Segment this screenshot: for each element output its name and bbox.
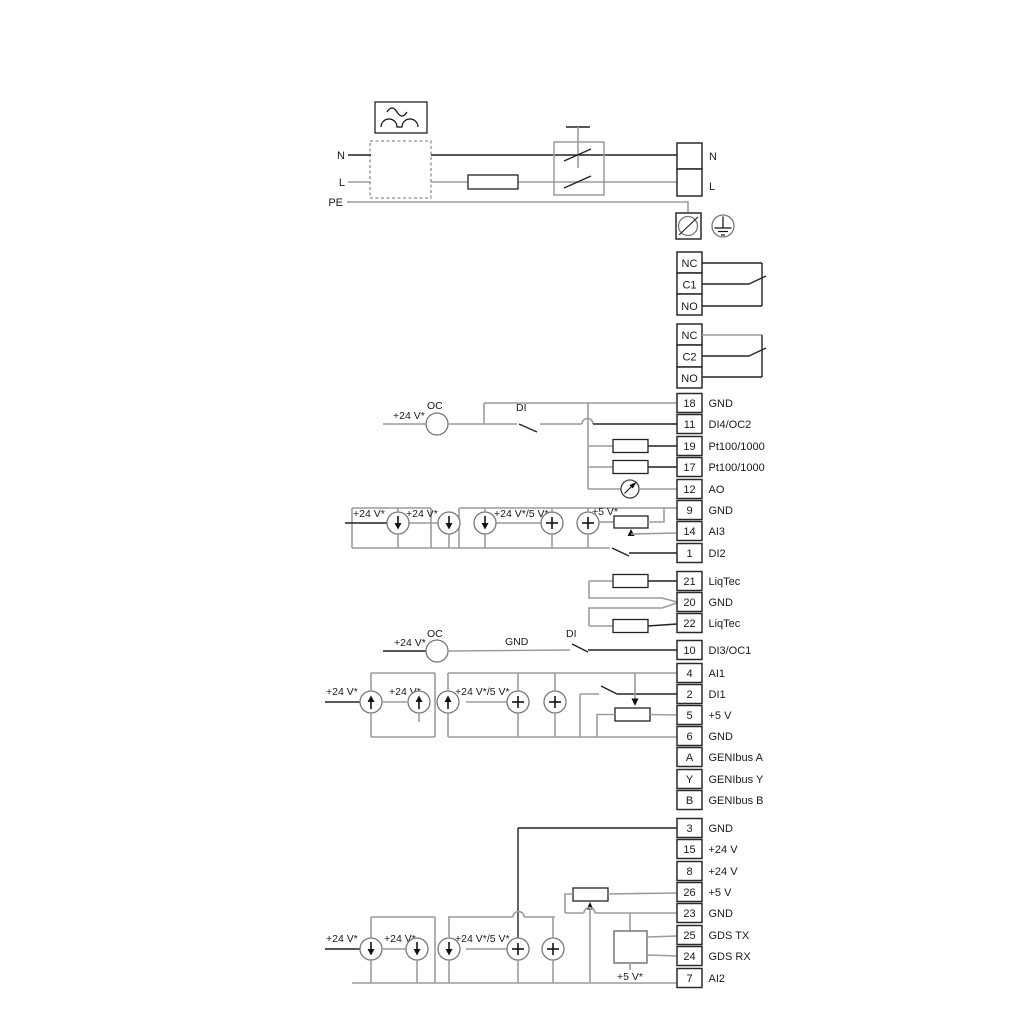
shape: [614, 931, 647, 963]
plus24v-label: +24 V*: [393, 410, 425, 422]
pt100-ao-circuit: [588, 440, 677, 499]
terminal-name: AI3: [709, 526, 726, 538]
terminal-number: 12: [683, 484, 695, 496]
terminal-number: A: [686, 752, 694, 764]
ai3-option-group: +24 V* +24 V* +24 V*/5 V* +5 V*: [345, 506, 677, 556]
terminal-number: 24: [683, 951, 695, 963]
terminal-number: 11: [684, 419, 695, 431]
terminal-row: 22LiqTec: [677, 614, 741, 633]
wire: [650, 715, 677, 716]
terminal-row: AGENIbus A: [677, 748, 764, 767]
terminal-name: LiqTec: [709, 618, 741, 630]
open-collector-icon: [426, 413, 448, 435]
wire: [597, 715, 615, 738]
terminal-row: 15+24 V: [677, 840, 738, 859]
plus24v-5v-label: +24 V*/5 V*: [455, 686, 510, 698]
relay2-nc: NC: [682, 330, 698, 342]
wire: [647, 955, 677, 956]
ai1-option-group: +24 V* +24 V* +24 V*/5 V*: [325, 673, 677, 737]
terminal-row: 19Pt100/1000: [677, 437, 765, 456]
terminal-row: 17Pt100/1000: [677, 458, 765, 477]
terminal-name: +24 V: [709, 844, 739, 856]
shape: [615, 708, 650, 721]
shape: [621, 480, 639, 498]
terminal-name: DI4/OC2: [709, 419, 752, 431]
current-sink-icon: [438, 917, 460, 983]
wiring-diagram-page: N L PE N L: [0, 0, 1024, 1024]
wire: [565, 894, 573, 913]
terminal-row: 14AI3: [677, 522, 725, 541]
resistor: [613, 575, 648, 588]
terminal-name: GND: [709, 908, 734, 920]
plus24v-label: +24 V*: [326, 933, 358, 945]
relay1-nc: NC: [682, 258, 698, 270]
l-right-label: L: [709, 181, 715, 193]
terminal-name: AI2: [709, 973, 726, 985]
terminal-number: 6: [686, 731, 692, 743]
analog-output-icon: [621, 480, 639, 498]
di2-switch-blade: [612, 548, 629, 556]
di1-switch-blade: [601, 686, 617, 694]
terminal-name: LiqTec: [709, 576, 741, 588]
terminal-number: 7: [686, 973, 692, 985]
power-section: N L PE N L: [328, 102, 734, 239]
terminal-row: 12AO: [677, 480, 725, 499]
terminal-number: 3: [686, 823, 692, 835]
n-right-label: N: [709, 151, 717, 163]
shape: [614, 516, 648, 528]
relay2-no: NO: [681, 373, 698, 385]
plus24v-label: +24 V*: [394, 637, 426, 649]
wiper-arrow: [632, 699, 639, 707]
current-source-icon: [437, 673, 459, 737]
current-source-icon: [360, 673, 382, 737]
terminal-number: 1: [686, 548, 692, 560]
terminal-number: 23: [683, 908, 695, 920]
oc-label: OC: [427, 400, 443, 412]
terminal-name: +5 V: [709, 887, 733, 899]
terminal-name: GDS RX: [709, 951, 752, 963]
terminal-number: Y: [686, 774, 694, 786]
terminal-name: AI1: [709, 668, 726, 680]
current-sink-icon: [438, 512, 460, 548]
relay2-contact-blade: [749, 348, 766, 356]
terminal-name: GND: [709, 823, 734, 835]
wire: [631, 533, 677, 534]
terminal-number: 26: [683, 887, 695, 899]
current-sink-icon: [360, 917, 382, 983]
terminal-name: +5 V: [709, 710, 733, 722]
relay2-c: C2: [682, 352, 696, 364]
oc-label: OC: [427, 628, 443, 640]
terminal-number: 8: [686, 866, 692, 878]
terminal-name: GENIbus Y: [709, 774, 764, 786]
terminal-number: 20: [683, 597, 695, 609]
terminal-name: GND: [709, 398, 734, 410]
terminal-strip: 18GND11DI4/OC219Pt100/100017Pt100/100012…: [677, 394, 765, 988]
terminal-name: GENIbus B: [709, 795, 764, 807]
shape: [677, 169, 702, 196]
plus5v-label: +5 V*: [617, 971, 643, 983]
terminal-row: 10DI3/OC1: [677, 641, 751, 660]
resistor: [613, 440, 648, 453]
open-collector-icon: [426, 640, 448, 662]
wire: [647, 936, 677, 937]
relay1-c: C1: [682, 280, 696, 292]
terminal-name: GND: [709, 597, 734, 609]
terminal-row: 1DI2: [677, 544, 726, 563]
terminal-number: 19: [683, 441, 695, 453]
filter-box: [370, 141, 431, 198]
terminal-name: DI3/OC1: [709, 645, 752, 657]
terminal-name: GDS TX: [709, 930, 750, 942]
voltage-source-icon: [507, 673, 529, 737]
terminal-name: GND: [709, 731, 734, 743]
potentiometer: [597, 708, 677, 737]
resistor: [613, 620, 648, 633]
terminal-number: 4: [686, 668, 692, 680]
relay1-contact-blade: [749, 276, 766, 284]
shape: [554, 142, 604, 195]
shape: [573, 888, 608, 901]
terminal-row: 21LiqTec: [677, 572, 741, 591]
terminal-number: 15: [683, 844, 695, 856]
plus24v-5v-label: +24 V*/5 V*: [494, 508, 549, 520]
resistor: [613, 461, 648, 474]
terminal-row: 20GND: [677, 593, 733, 612]
relay-1: NC C1 NO: [677, 252, 766, 315]
terminal-row: 26+5 V: [677, 883, 732, 902]
terminal-number: 10: [683, 645, 695, 657]
di3-switch-blade: [572, 644, 588, 652]
terminal-number: 5: [686, 710, 692, 722]
terminal-row: 25GDS TX: [677, 926, 750, 945]
shape: [677, 143, 702, 169]
terminal-row: 5+5 V: [677, 706, 732, 725]
terminal-number: 22: [683, 618, 695, 630]
earth-icon: [712, 215, 734, 237]
terminal-name: Pt100/1000: [709, 462, 765, 474]
relay-2: NC C2 NO: [677, 324, 766, 388]
liqtec-circuit: [589, 575, 677, 633]
pe-wire: [347, 202, 688, 214]
terminal-row: 7AI2: [677, 969, 725, 988]
terminal-name: DI2: [709, 548, 726, 560]
plus24v-5v-label: +24 V*/5 V*: [455, 933, 510, 945]
terminal-name: DI1: [709, 689, 726, 701]
wire: [448, 650, 570, 651]
gnd-label: GND: [505, 636, 529, 648]
current-sink-icon: [406, 938, 428, 983]
gds-module: +5 V*: [614, 913, 677, 983]
terminal-row: 9GND: [677, 501, 733, 520]
terminal-number: 25: [683, 930, 695, 942]
terminal-name: GENIbus A: [709, 752, 764, 764]
terminal-row: 3GND: [677, 819, 733, 838]
wire: [648, 624, 677, 626]
voltage-source-icon: [507, 938, 529, 983]
l-left-label: L: [339, 177, 345, 189]
potentiometer: [565, 888, 677, 982]
terminal-name: GND: [709, 505, 734, 517]
shape: [628, 529, 635, 536]
n-left-label: N: [337, 150, 345, 162]
ai2-option-group: +24 V* +24 V* +24 V*/5 V*: [325, 828, 677, 983]
terminal-name: +24 V: [709, 866, 739, 878]
terminal-row: 2DI1: [677, 685, 726, 704]
terminal-row: 23GND: [677, 904, 733, 923]
terminal-row: BGENIbus B: [677, 791, 764, 810]
pe-screw-terminal: [676, 213, 701, 239]
terminal-row: 11DI4/OC2: [677, 415, 751, 434]
terminal-number: 14: [683, 526, 695, 538]
wire: [608, 893, 677, 894]
terminal-name: AO: [709, 484, 725, 496]
terminal-number: 21: [683, 576, 695, 588]
voltage-source-icon: [542, 917, 564, 983]
plus24v-label: +24 V*: [406, 508, 438, 520]
mains-terminal-block: N L: [677, 143, 717, 196]
terminal-row: 24GDS RX: [677, 947, 751, 966]
plus24v-label: +24 V*: [353, 508, 385, 520]
terminal-row: 4AI1: [677, 664, 725, 683]
terminal-row: 8+24 V: [677, 862, 738, 881]
fuse: [468, 175, 518, 189]
voltage-source-icon: [544, 673, 566, 737]
wire: [648, 508, 664, 522]
di-label: DI: [566, 628, 577, 640]
rectifier-box: [375, 102, 427, 133]
di4-switch-blade: [519, 424, 537, 432]
terminal-row: 6GND: [677, 727, 733, 746]
mains-switch: [554, 127, 604, 195]
current-source-icon: [408, 691, 430, 722]
terminal-number: 9: [686, 505, 692, 517]
terminal-number: B: [686, 795, 693, 807]
terminal-number: 18: [683, 398, 695, 410]
pe-label: PE: [328, 197, 343, 209]
current-sink-icon: [474, 508, 496, 548]
terminal-name: Pt100/1000: [709, 441, 765, 453]
wiring-diagram: N L PE N L: [0, 0, 1024, 1024]
terminal-number: 17: [683, 462, 695, 474]
terminal-row: YGENIbus Y: [677, 770, 764, 789]
plus24v-label: +24 V*: [326, 686, 358, 698]
terminal-row: 18GND: [677, 394, 733, 413]
terminal-number: 2: [686, 689, 692, 701]
relay1-no: NO: [681, 301, 698, 313]
